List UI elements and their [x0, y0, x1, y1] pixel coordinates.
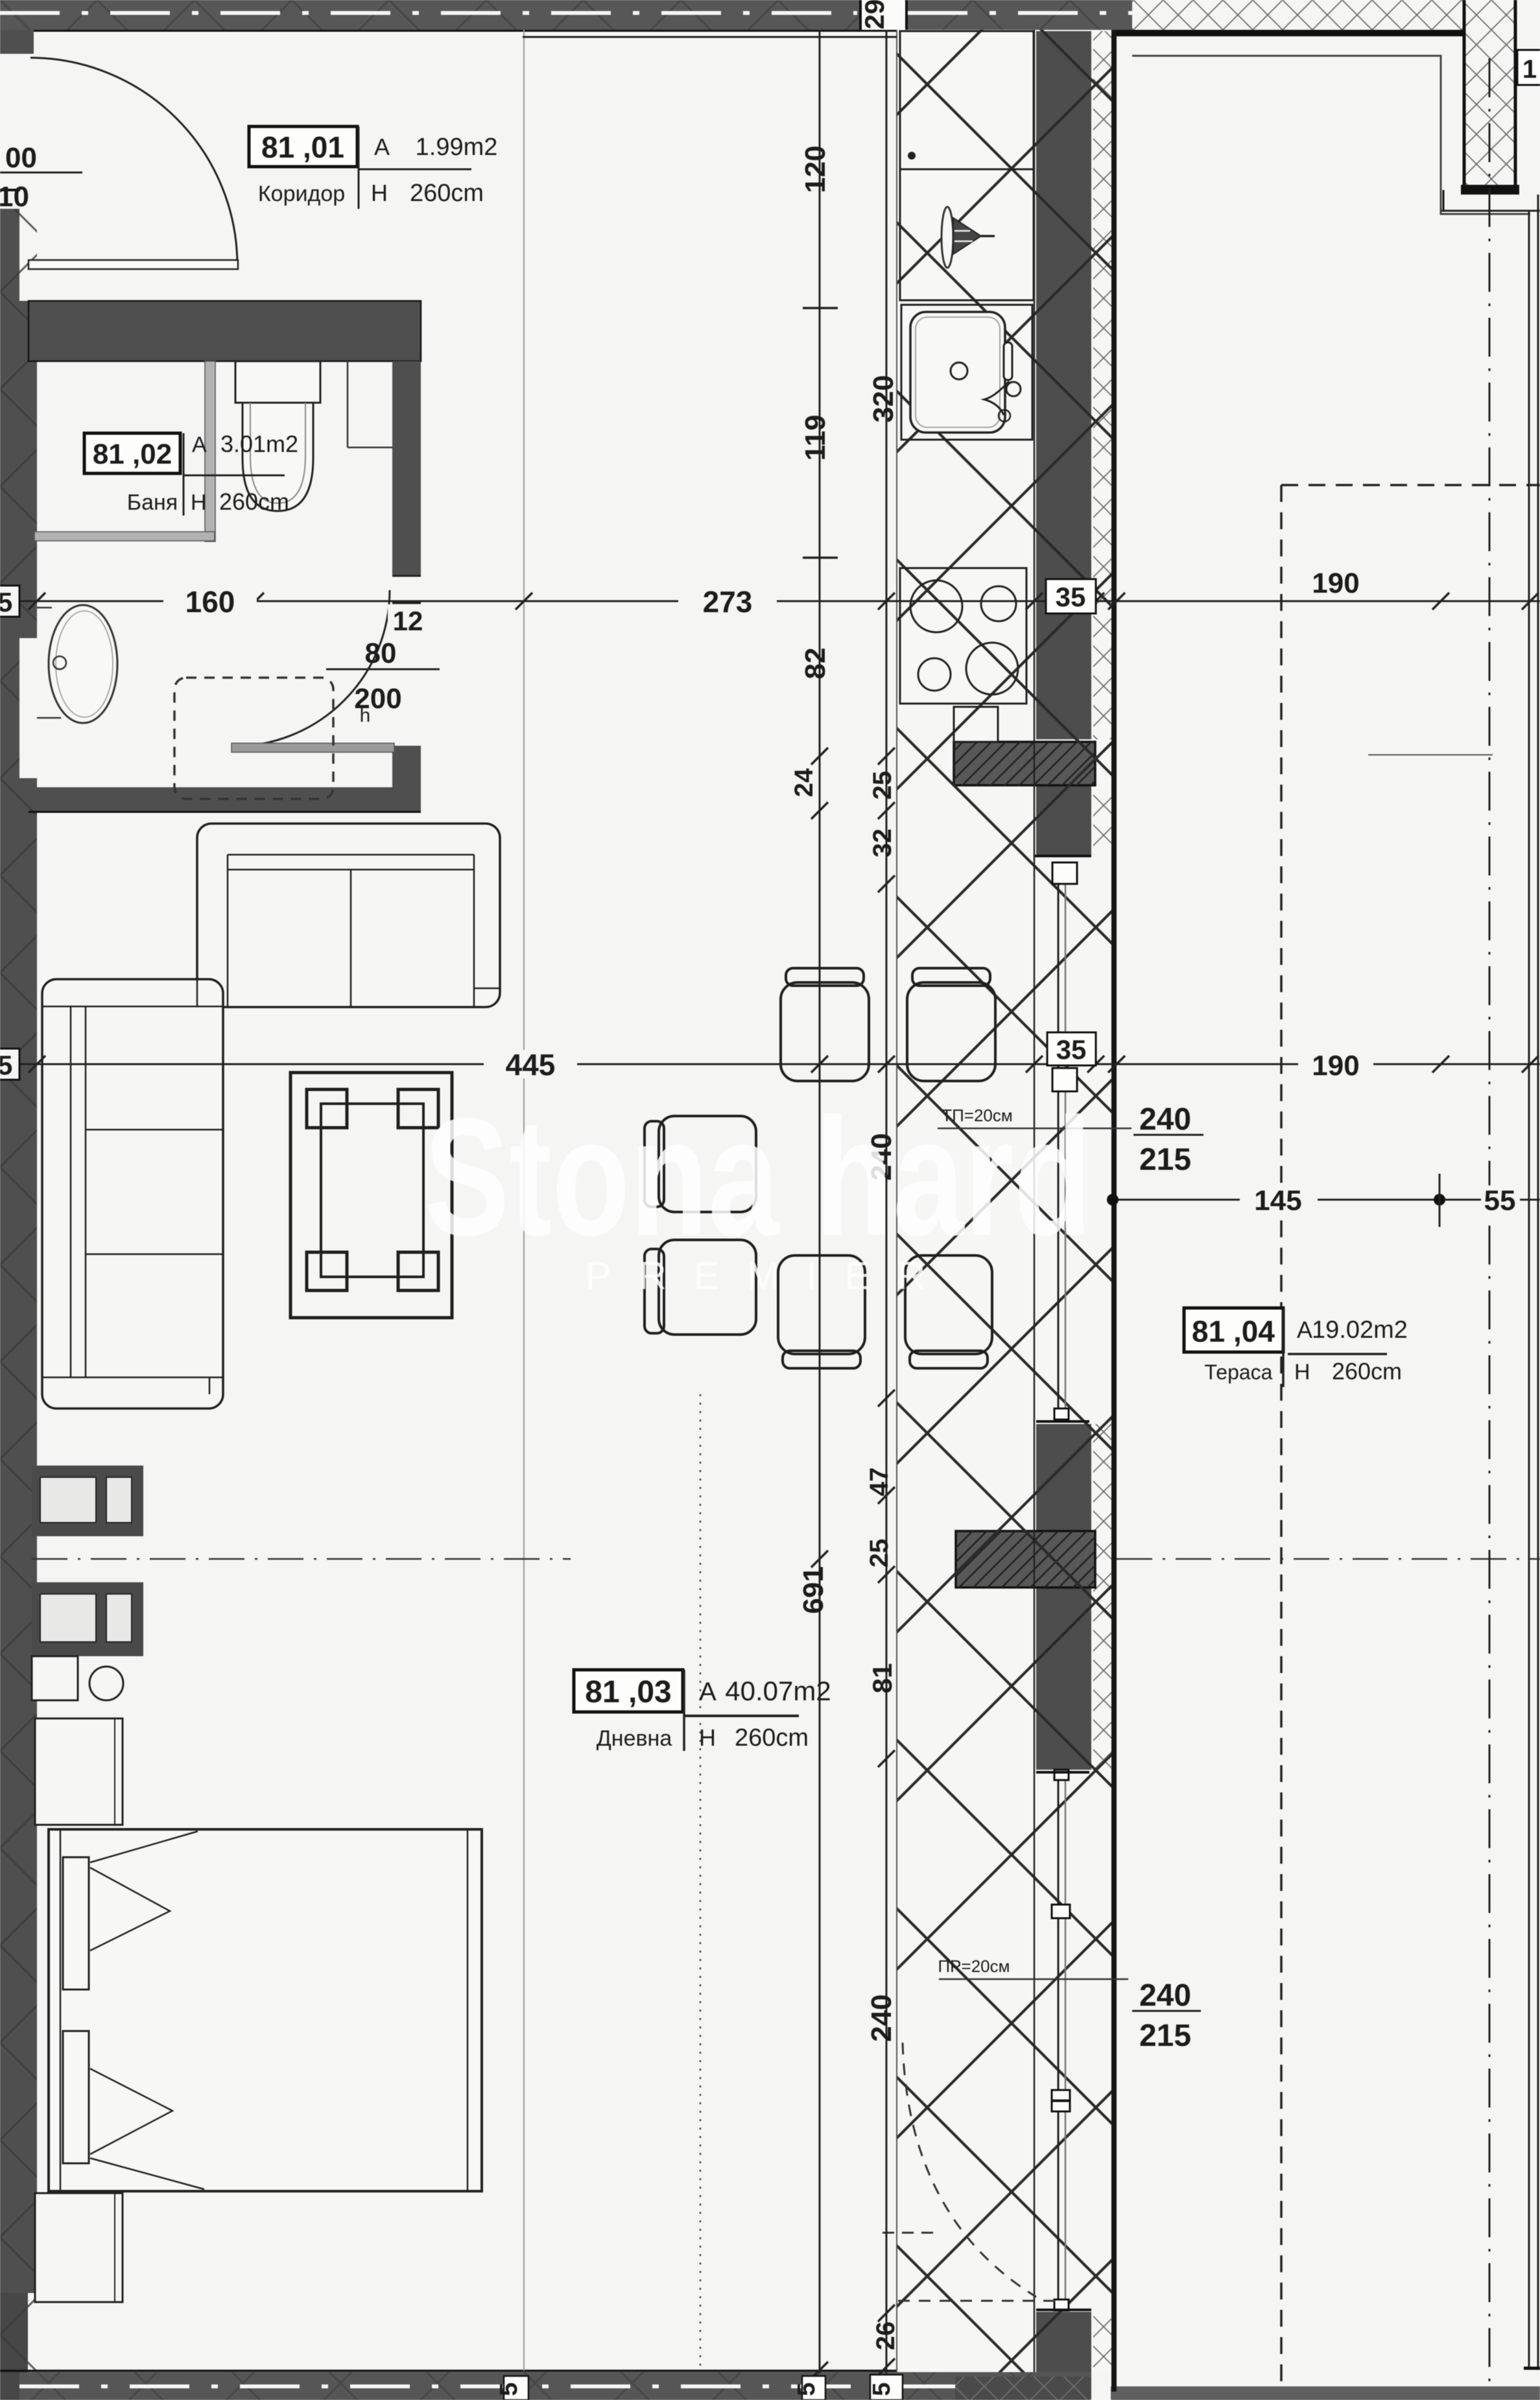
svg-text:32: 32 [868, 829, 897, 858]
svg-text:00: 00 [5, 142, 37, 174]
svg-text:A: A [192, 433, 207, 457]
svg-text:445: 445 [506, 1048, 556, 1082]
svg-text:55: 55 [1484, 1185, 1516, 1217]
svg-text:25: 25 [0, 587, 12, 617]
svg-text:260cm: 260cm [735, 1724, 809, 1752]
svg-text:Дневна: Дневна [597, 1726, 672, 1751]
svg-text:25: 25 [865, 1539, 894, 1568]
svg-text:Stona hard: Stona hard [424, 1083, 1092, 1270]
svg-text:81 ,02: 81 ,02 [93, 438, 172, 470]
svg-text:190: 190 [1312, 1050, 1359, 1082]
svg-text:26: 26 [871, 2322, 900, 2351]
svg-text:ПР=20см: ПР=20см [938, 1956, 1010, 1976]
svg-text:3.01m2: 3.01m2 [220, 431, 298, 457]
svg-text:120: 120 [800, 145, 831, 193]
svg-text:273: 273 [703, 585, 753, 619]
svg-text:160: 160 [185, 585, 235, 619]
svg-text:47: 47 [865, 1467, 894, 1497]
svg-text:240: 240 [1139, 1102, 1191, 1137]
svg-text:29: 29 [859, 0, 890, 29]
svg-text:Коридор: Коридор [258, 182, 345, 206]
svg-text:1: 1 [1522, 55, 1537, 84]
svg-text:80: 80 [365, 637, 397, 669]
svg-text:691: 691 [798, 1566, 829, 1613]
svg-text:260cm: 260cm [219, 488, 289, 515]
svg-text:Баня: Баня [127, 490, 178, 515]
svg-text:320: 320 [868, 375, 899, 422]
svg-text:215: 215 [1139, 1143, 1191, 1177]
svg-text:A: A [699, 1678, 717, 1706]
svg-text:A: A [1297, 1316, 1312, 1343]
svg-text:H: H [1294, 1360, 1310, 1384]
svg-text:81 ,03: 81 ,03 [585, 1675, 671, 1709]
svg-text:H: H [699, 1724, 716, 1751]
svg-text:12: 12 [393, 606, 423, 636]
svg-text:240: 240 [1139, 1978, 1191, 2013]
svg-text:H: H [191, 490, 207, 515]
svg-text:81 ,04: 81 ,04 [1192, 1314, 1275, 1348]
svg-text:190: 190 [1312, 567, 1359, 599]
svg-text:5: 5 [495, 2382, 523, 2396]
svg-text:40.07m2: 40.07m2 [725, 1676, 831, 1706]
svg-text:H: H [371, 180, 388, 206]
svg-text:145: 145 [1254, 1185, 1301, 1217]
svg-text:1.99m2: 1.99m2 [416, 134, 498, 161]
svg-text:35: 35 [1056, 582, 1086, 612]
svg-text:5: 5 [868, 2382, 895, 2396]
svg-text:260cm: 260cm [410, 180, 484, 207]
svg-text:h: h [360, 705, 371, 726]
svg-text:Тераса: Тераса [1205, 1360, 1273, 1384]
svg-text:5: 5 [793, 2382, 820, 2396]
svg-text:24: 24 [790, 768, 818, 797]
svg-text:260cm: 260cm [1332, 1358, 1402, 1384]
svg-text:A: A [374, 134, 390, 160]
svg-text:19.02m2: 19.02m2 [1312, 1316, 1408, 1344]
svg-text:81 ,01: 81 ,01 [261, 130, 344, 164]
svg-text:215: 215 [1139, 2019, 1191, 2053]
svg-text:25: 25 [868, 771, 897, 800]
svg-text:25: 25 [0, 1050, 12, 1080]
svg-text:82: 82 [800, 648, 831, 680]
svg-text:81: 81 [867, 1663, 897, 1694]
svg-text:240: 240 [866, 1994, 897, 2041]
svg-text:119: 119 [800, 415, 831, 461]
svg-text:35: 35 [1056, 1034, 1087, 1065]
svg-text:10: 10 [0, 181, 29, 213]
